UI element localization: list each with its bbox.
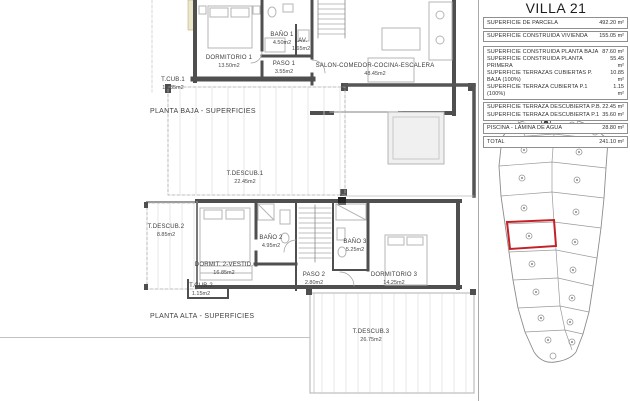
room-label-tdescub-2: T.DESCUB.2 8.85m2 bbox=[148, 224, 185, 238]
room-name: DORMITORIO 3 bbox=[371, 272, 417, 278]
room-label-tcub-1: T.CUB.1 10.85m2 bbox=[161, 77, 185, 91]
room-label-bano-1: BAÑO 1 4.50m2 bbox=[270, 32, 293, 46]
room-label-tdescub-3: T.DESCUB.3 26.75m2 bbox=[353, 329, 390, 343]
row-label: SUPERFICIE CONSTRUIDA VIVIENDA bbox=[487, 33, 588, 40]
room-name: BAÑO 2 bbox=[259, 235, 282, 241]
room-label-paso-1: PASO 1 3.55m2 bbox=[273, 61, 295, 75]
room-name: T.DESCUB.2 bbox=[148, 224, 185, 230]
table-group: SUPERFICIE CONSTRUIDA PLANTA BAJA 87.60 … bbox=[483, 46, 628, 100]
room-name: PASO 1 bbox=[273, 61, 295, 67]
room-area: 16.85m2 bbox=[195, 271, 253, 277]
site-plan bbox=[499, 117, 608, 363]
planta-baja-drawing bbox=[152, 0, 475, 196]
sheet-divider-line bbox=[0, 337, 310, 338]
row-value: 87.60 m² bbox=[602, 49, 624, 56]
table-group: SUPERFICIE DE PARCELA 492.20 m² bbox=[483, 17, 628, 29]
row-value: 22.45 m² bbox=[602, 104, 624, 111]
table-group: TOTAL 241.10 m² bbox=[483, 136, 628, 148]
room-name: T.DESCUB.3 bbox=[353, 329, 390, 335]
table-row: SUPERFICIE CONSTRUIDA PLANTA PRIMERA 55.… bbox=[484, 56, 627, 70]
table-row: SUPERFICIE TERRAZA DESCUBIERTA P.1 35.60… bbox=[484, 111, 627, 119]
row-label: SUPERFICIE TERRAZAS CUBIERTAS P. BAJA (1… bbox=[487, 70, 606, 83]
row-value: 10.85 m² bbox=[606, 70, 624, 83]
room-area: 48.45m2 bbox=[316, 72, 435, 78]
room-label-tcub-2: T.CUB.2 1.15m2 bbox=[189, 283, 213, 297]
room-label-paso-2: PASO 2 2.80m2 bbox=[303, 272, 325, 286]
room-label-lav: LAV. 1.65m2 bbox=[292, 38, 310, 52]
room-area: 1.65m2 bbox=[292, 47, 310, 53]
row-value: 492.20 m² bbox=[599, 20, 624, 27]
room-area: 13.50m2 bbox=[206, 64, 252, 70]
room-name: DORMIT. 2-VESTID. bbox=[195, 262, 253, 268]
row-label: PISCINA - LÁMINA DE AGUA bbox=[487, 125, 562, 132]
room-area: 22.45m2 bbox=[227, 180, 264, 186]
row-label: SUPERFICIE TERRAZA CUBIERTA P.1 (100%) bbox=[487, 84, 606, 97]
row-value: 241.10 m² bbox=[599, 139, 624, 146]
table-row: SUPERFICIE TERRAZAS CUBIERTAS P. BAJA (1… bbox=[484, 70, 627, 84]
room-area: 8.85m2 bbox=[148, 233, 185, 239]
room-name: DORMITORIO 1 bbox=[206, 55, 252, 61]
room-area: 5.25m2 bbox=[343, 248, 366, 254]
panel-divider-line bbox=[478, 0, 479, 401]
room-area: 3.55m2 bbox=[273, 70, 295, 76]
room-area: 2.80m2 bbox=[303, 281, 325, 287]
room-label-bano-3: BAÑO 3 5.25m2 bbox=[343, 239, 366, 253]
row-label: SUPERFICIE DE PARCELA bbox=[487, 20, 558, 27]
table-row: SUPERFICIE CONSTRUIDA VIVIENDA 155.05 m² bbox=[484, 33, 627, 41]
planta-alta-title: PLANTA ALTA - SUPERFICIES bbox=[150, 313, 254, 320]
areas-table: SUPERFICIE DE PARCELA 492.20 m² SUPERFIC… bbox=[483, 17, 628, 150]
room-name: LAV. bbox=[292, 38, 310, 44]
room-area: 10.85m2 bbox=[161, 86, 185, 92]
row-value: 35.60 m² bbox=[602, 112, 624, 119]
row-label: SUPERFICIE TERRAZA DESCUBIERTA P.B. bbox=[487, 104, 601, 111]
table-row: TOTAL 241.10 m² bbox=[484, 138, 627, 146]
table-group: SUPERFICIE TERRAZA DESCUBIERTA P.B. 22.4… bbox=[483, 102, 628, 121]
table-group: SUPERFICIE CONSTRUIDA VIVIENDA 155.05 m² bbox=[483, 31, 628, 43]
table-row: SUPERFICIE DE PARCELA 492.20 m² bbox=[484, 19, 627, 27]
room-name: BAÑO 1 bbox=[270, 32, 293, 38]
room-name: SALON-COMEDOR-COCINA-ESCALERA bbox=[316, 63, 435, 69]
room-label-dormitorio-3: DORMITORIO 3 14.25m2 bbox=[371, 272, 417, 286]
row-value: 1.15 m² bbox=[606, 84, 624, 97]
row-label: SUPERFICIE TERRAZA DESCUBIERTA P.1 bbox=[487, 112, 599, 119]
room-name: BAÑO 3 bbox=[343, 239, 366, 245]
row-label: SUPERFICIE CONSTRUIDA PLANTA BAJA bbox=[487, 49, 598, 56]
room-name: PASO 2 bbox=[303, 272, 325, 278]
room-label-dormitorio-1: DORMITORIO 1 13.50m2 bbox=[206, 55, 252, 69]
room-name: T.CUB.2 bbox=[189, 283, 213, 289]
plan-sheet: DORMITORIO 1 13.50m2 BAÑO 1 4.50m2 LAV. … bbox=[0, 0, 630, 401]
room-area: 14.25m2 bbox=[371, 281, 417, 287]
room-name: T.CUB.1 bbox=[161, 77, 185, 83]
room-area: 1.15m2 bbox=[189, 292, 213, 298]
table-row: SUPERFICIE TERRAZA DESCUBIERTA P.B. 22.4… bbox=[484, 104, 627, 112]
page-title: VILLA 21 bbox=[483, 0, 629, 16]
room-area: 26.75m2 bbox=[353, 338, 390, 344]
room-name: T.DESCUB.1 bbox=[227, 171, 264, 177]
table-row: PISCINA - LÁMINA DE AGUA 28.80 m² bbox=[484, 125, 627, 133]
room-label-dormit-2-vestid: DORMIT. 2-VESTID. 16.85m2 bbox=[195, 262, 253, 276]
room-label-salon: SALON-COMEDOR-COCINA-ESCALERA 48.45m2 bbox=[316, 63, 435, 77]
row-value: 28.80 m² bbox=[602, 125, 624, 132]
room-label-tdescub-1: T.DESCUB.1 22.45m2 bbox=[227, 171, 264, 185]
row-value: 155.05 m² bbox=[599, 33, 624, 40]
row-label: SUPERFICIE CONSTRUIDA PLANTA PRIMERA bbox=[487, 56, 603, 69]
table-group: PISCINA - LÁMINA DE AGUA 28.80 m² bbox=[483, 123, 628, 135]
table-row: SUPERFICIE CONSTRUIDA PLANTA BAJA 87.60 … bbox=[484, 48, 627, 56]
table-row: SUPERFICIE TERRAZA CUBIERTA P.1 (100%) 1… bbox=[484, 84, 627, 98]
row-label: TOTAL bbox=[487, 139, 505, 146]
room-area: 4.50m2 bbox=[270, 41, 293, 47]
row-value: 55.45 m² bbox=[603, 56, 624, 69]
planta-baja-title: PLANTA BAJA - SUPERFICIES bbox=[150, 108, 256, 115]
room-area: 4.95m2 bbox=[259, 244, 282, 250]
room-label-bano-2: BAÑO 2 4.95m2 bbox=[259, 235, 282, 249]
